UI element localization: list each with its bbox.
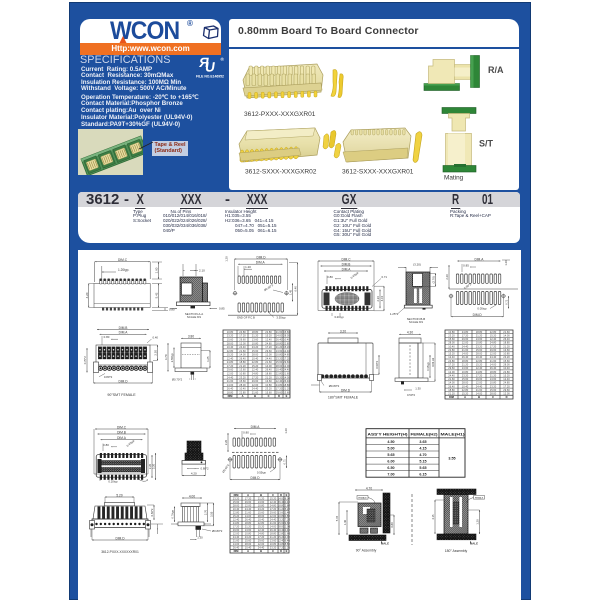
svg-text:13.60: 13.60: [503, 348, 510, 352]
svg-text:21.60: 21.60: [239, 349, 246, 353]
svg-text:17.20: 17.20: [265, 345, 272, 349]
svg-text:29.60: 29.60: [227, 368, 234, 372]
svg-text:23.20: 23.20: [276, 356, 283, 360]
svg-text:22.80: 22.80: [258, 521, 265, 525]
svg-text:13.60: 13.60: [490, 377, 497, 381]
svg-text:Mating: Mating: [444, 175, 464, 182]
svg-text:2.20: 2.20: [445, 274, 449, 280]
svg-text:®: ®: [221, 56, 225, 62]
svg-text:0.71: 0.71: [505, 299, 509, 305]
svg-text:26.40: 26.40: [270, 528, 277, 532]
svg-text:13.60: 13.60: [265, 379, 272, 383]
svg-text:29.60: 29.60: [276, 390, 283, 394]
svg-text:Ø0.60*2: Ø0.60*2: [263, 283, 274, 292]
svg-text:4.15: 4.15: [380, 295, 384, 301]
svg-text:21.20: 21.20: [276, 345, 283, 349]
svg-text:3.20typ: 3.20typ: [334, 315, 344, 319]
svg-text:1.20: 1.20: [225, 256, 229, 262]
svg-text:22.80: 22.80: [239, 390, 246, 394]
svg-text:23.20: 23.20: [490, 384, 497, 388]
svg-text:D: D: [280, 493, 282, 497]
svg-text:24.80: 24.80: [448, 359, 455, 363]
svg-text:26.40: 26.40: [227, 387, 234, 391]
svg-text:6.50: 6.50: [387, 466, 394, 470]
svg-text:2.70: 2.70: [204, 509, 208, 515]
svg-text:29.60: 29.60: [258, 539, 265, 543]
svg-text:3612-PXXX-XXXXXXR01: 3612-PXXX-XXXXXXR01: [101, 550, 139, 554]
svg-text:DIM.B: DIM.B: [119, 326, 128, 330]
svg-text:A: A: [247, 493, 249, 497]
svg-text:13.60: 13.60: [276, 349, 283, 353]
svg-text:Ø0.60*2: Ø0.60*2: [221, 463, 230, 474]
svg-text:FEMALE(H2): FEMALE(H2): [411, 432, 439, 437]
svg-text:12.00: 12.00: [503, 392, 510, 396]
svg-text:21.20: 21.20: [245, 525, 252, 529]
svg-text:21.60: 21.60: [227, 379, 234, 383]
svg-text:10.80: 10.80: [239, 372, 246, 376]
svg-text:3612-SXXX-XXXGXR01: 3612-SXXX-XXXGXR01: [342, 169, 414, 176]
svg-text:14.00: 14.00: [462, 352, 469, 356]
svg-text:10.40: 10.40: [227, 345, 234, 349]
svg-text:23.20: 23.20: [227, 334, 234, 338]
svg-text:17.20: 17.20: [283, 518, 290, 522]
svg-text:15.60: 15.60: [258, 510, 265, 514]
svg-text:14.00: 14.00: [233, 542, 240, 546]
svg-text:21.20: 21.20: [462, 363, 469, 367]
svg-text:B: B: [254, 394, 256, 398]
svg-text:28.00: 28.00: [283, 496, 290, 500]
svg-text:D: D: [278, 394, 280, 398]
svg-text:12.40: 12.40: [227, 356, 234, 360]
svg-text:12.40: 12.40: [233, 518, 240, 522]
svg-text:28.00: 28.00: [503, 363, 510, 367]
svg-text:14.00: 14.00: [276, 334, 283, 338]
svg-text:3.80: 3.80: [188, 335, 194, 339]
svg-text:10.40: 10.40: [233, 507, 240, 511]
svg-text:24.80: 24.80: [252, 372, 259, 376]
svg-text:DIM.H2: DIM.H2: [431, 357, 435, 366]
svg-text:24.80: 24.80: [476, 370, 483, 374]
svg-text:29.60: 29.60: [448, 366, 455, 370]
svg-text:FEMALE: FEMALE: [475, 496, 484, 499]
svg-text:2.34: 2.34: [376, 296, 380, 302]
svg-text:(2.70): (2.70): [432, 276, 436, 283]
svg-text:90°SMT FEMALE: 90°SMT FEMALE: [107, 393, 136, 397]
svg-text:15.60: 15.60: [283, 330, 290, 334]
svg-text:22.80: 22.80: [283, 341, 290, 345]
svg-text:28.00: 28.00: [258, 514, 265, 518]
svg-text:E: E: [286, 549, 288, 553]
svg-text:0.71: 0.71: [382, 275, 388, 279]
svg-text:10.40: 10.40: [462, 384, 469, 388]
svg-text:29.60: 29.60: [490, 348, 497, 352]
svg-text:5.65: 5.65: [387, 453, 394, 457]
svg-text:10.40: 10.40: [476, 355, 483, 359]
svg-text:3.55typ: 3.55typ: [170, 353, 174, 362]
svg-text:21.60: 21.60: [283, 532, 290, 536]
svg-text:18.80: 18.80: [239, 360, 246, 364]
svg-text:21.20: 21.20: [283, 546, 290, 550]
svg-text:ASS'Y HEIGHT(H): ASS'Y HEIGHT(H): [368, 432, 409, 437]
svg-text:DIM.D: DIM.D: [118, 379, 128, 383]
svg-text:15.60: 15.60: [276, 360, 283, 364]
svg-text:15.20: 15.20: [276, 375, 283, 379]
svg-text:3.20: 3.20: [152, 463, 156, 469]
svg-text:10.80: 10.80: [252, 341, 259, 345]
svg-text:24.40: 24.40: [227, 375, 234, 379]
svg-text:28.00: 28.00: [476, 352, 483, 356]
svg-text:12.00: 12.00: [283, 364, 290, 368]
svg-text:MALE: MALE: [381, 542, 389, 546]
svg-text:DIM.A: DIM.A: [474, 257, 484, 261]
svg-text:10.80: 10.80: [276, 353, 283, 357]
svg-text:10.80: 10.80: [476, 341, 483, 345]
svg-text:4.70: 4.70: [419, 453, 426, 457]
svg-text:0.50*2: 0.50*2: [375, 360, 379, 368]
svg-text:3.55: 3.55: [448, 457, 455, 461]
svg-text:12.00: 12.00: [252, 383, 259, 387]
svg-text:24.80: 24.80: [258, 532, 265, 536]
svg-text:1.30: 1.30: [197, 536, 203, 540]
svg-text:0.05typ: 0.05typ: [477, 307, 487, 311]
svg-text:B: B: [478, 395, 480, 399]
svg-text:0.71: 0.71: [283, 459, 287, 465]
svg-text:3612-SXXX-XXXGXR02: 3612-SXXX-XXXGXR02: [245, 169, 317, 176]
svg-text:12.40: 12.40: [476, 366, 483, 370]
svg-text:24.40: 24.40: [462, 344, 469, 348]
svg-text:15.20: 15.20: [233, 514, 240, 518]
svg-text:1.20: 1.20: [284, 428, 288, 434]
svg-text:C: C: [268, 394, 270, 398]
svg-text:10.80: 10.80: [462, 370, 469, 374]
svg-text:DIM.B: DIM.B: [117, 430, 126, 434]
svg-text:13.60: 13.60: [245, 528, 252, 532]
svg-text:18.80: 18.80: [252, 330, 259, 334]
svg-text:1.25: 1.25: [206, 356, 210, 362]
svg-text:24.40: 24.40: [476, 384, 483, 388]
svg-text:DIM.C: DIM.C: [117, 425, 127, 429]
svg-text:24.40: 24.40: [283, 528, 290, 532]
svg-text:3612-PXXX-XXXGXR01: 3612-PXXX-XXXGXR01: [244, 111, 316, 118]
svg-text:12.40: 12.40: [283, 349, 290, 353]
svg-text:21.60: 21.60: [265, 360, 272, 364]
svg-text:5.00: 5.00: [387, 447, 394, 451]
svg-text:18.80: 18.80: [265, 372, 272, 376]
svg-text:22.80: 22.80: [490, 330, 497, 334]
svg-text:14.00: 14.00: [283, 375, 290, 379]
svg-text:12.40: 12.40: [276, 379, 283, 383]
svg-text:3.55: 3.55: [210, 511, 214, 517]
svg-text:18.80: 18.80: [283, 542, 290, 546]
svg-text:R/A: R/A: [488, 65, 504, 75]
svg-text:28.00: 28.00: [490, 392, 497, 396]
svg-text:23.20: 23.20: [239, 375, 246, 379]
svg-text:13.60: 13.60: [252, 338, 259, 342]
svg-text:15.60: 15.60: [239, 379, 246, 383]
svg-text:12.40: 12.40: [258, 528, 265, 532]
svg-text:12.00: 12.00: [283, 525, 290, 529]
svg-text:2.10: 2.10: [199, 268, 205, 272]
svg-text:15.60: 15.60: [233, 500, 240, 504]
svg-text:12.40: 12.40: [265, 338, 272, 342]
svg-text:29.60: 29.60: [265, 349, 272, 353]
svg-text:24.80: 24.80: [276, 383, 283, 387]
svg-text:26.40: 26.40: [462, 355, 469, 359]
svg-text:90° Assembly: 90° Assembly: [356, 549, 377, 553]
svg-text:SCALE 8/1: SCALE 8/1: [409, 320, 424, 324]
svg-text:13.60: 13.60: [476, 337, 483, 341]
svg-text:21.60: 21.60: [448, 377, 455, 381]
svg-text:0.40: 0.40: [153, 336, 159, 340]
svg-text:12.00: 12.00: [462, 341, 469, 345]
svg-text:0.80: 0.80: [390, 522, 394, 528]
svg-text:24.40: 24.40: [258, 546, 265, 550]
svg-text:10.40: 10.40: [258, 518, 265, 522]
svg-text:15.20: 15.20: [448, 352, 455, 356]
svg-text:5.20: 5.20: [116, 493, 122, 497]
svg-text:0.80: 0.80: [243, 430, 249, 434]
svg-text:23.20: 23.20: [503, 355, 510, 359]
svg-text:10.40: 10.40: [239, 387, 246, 391]
svg-text:0.85: 0.85: [463, 264, 469, 268]
svg-text:4.20: 4.20: [85, 292, 89, 298]
svg-text:13.60: 13.60: [462, 366, 469, 370]
svg-text:21.20: 21.20: [503, 344, 510, 348]
svg-text:21.20: 21.20: [476, 334, 483, 338]
svg-text:28.00: 28.00: [276, 364, 283, 368]
svg-text:23.20: 23.20: [252, 345, 259, 349]
svg-text:15.60: 15.60: [462, 377, 469, 381]
svg-text:23.20: 23.20: [476, 344, 483, 348]
svg-text:4.30: 4.30: [407, 331, 413, 335]
svg-text:18.80: 18.80: [448, 388, 455, 392]
svg-text:24.80: 24.80: [233, 521, 240, 525]
svg-text:12.40: 12.40: [270, 500, 277, 504]
svg-text:15.20: 15.20: [476, 363, 483, 367]
svg-text:24.40: 24.40: [245, 507, 252, 511]
svg-text:14.00: 14.00: [283, 535, 290, 539]
svg-text:29.60: 29.60: [283, 360, 290, 364]
svg-text:14.00: 14.00: [503, 334, 510, 338]
svg-text:15.20: 15.20: [462, 392, 469, 396]
svg-text:1.45: 1.45: [289, 289, 293, 295]
svg-text:24.80: 24.80: [283, 353, 290, 357]
svg-text:15.60: 15.60: [490, 388, 497, 392]
svg-text:4.70: 4.70: [366, 486, 372, 490]
svg-text:28.00: 28.00: [283, 334, 290, 338]
svg-text:15.20: 15.20: [503, 373, 510, 377]
svg-text:15.20: 15.20: [490, 334, 497, 338]
svg-text:DIM.D: DIM.D: [115, 536, 125, 540]
svg-text:24.40: 24.40: [270, 518, 277, 522]
svg-text:1.40: 1.40: [343, 519, 347, 525]
svg-text:28.00: 28.00: [462, 381, 469, 385]
svg-text:17.20: 17.20: [270, 507, 277, 511]
svg-text:14.00: 14.00: [227, 383, 234, 387]
svg-text:DIM.D: DIM.D: [250, 476, 260, 480]
svg-text:3.20: 3.20: [340, 329, 346, 333]
svg-text:FILE NO.E146952: FILE NO.E146952: [196, 75, 224, 79]
svg-text:B: B: [260, 549, 262, 553]
svg-text:24.80: 24.80: [490, 341, 497, 345]
svg-text:17.20: 17.20: [233, 525, 240, 529]
svg-text:15.20: 15.20: [265, 334, 272, 338]
svg-text:17.20: 17.20: [476, 373, 483, 377]
svg-text:22.80: 22.80: [276, 372, 283, 376]
svg-text:21.60: 21.60: [252, 390, 259, 394]
svg-text:24.80: 24.80: [270, 503, 277, 507]
svg-text:15.20: 15.20: [227, 353, 234, 357]
svg-text:12.00: 12.00: [227, 372, 234, 376]
svg-text:26.40: 26.40: [448, 384, 455, 388]
svg-text:12.40: 12.40: [448, 355, 455, 359]
svg-text:0.35typ: 0.35typ: [426, 362, 430, 371]
svg-text:15.60: 15.60: [503, 359, 510, 363]
svg-text:21.20: 21.20: [239, 364, 246, 368]
svg-text:18.80: 18.80: [270, 532, 277, 536]
svg-text:12.40: 12.40: [252, 368, 259, 372]
svg-text:12.40: 12.40: [283, 510, 290, 514]
svg-text:0.55typ: 0.55typ: [257, 470, 267, 474]
svg-text:MALE: MALE: [470, 542, 478, 546]
svg-text:4.15: 4.15: [419, 447, 426, 451]
svg-text:26.40: 26.40: [239, 356, 246, 360]
svg-text:29.60: 29.60: [476, 377, 483, 381]
svg-text:DIM: DIM: [228, 394, 233, 398]
svg-text:18.80: 18.80: [276, 341, 283, 345]
svg-text:21.60: 21.60: [276, 330, 283, 334]
svg-text:23.20: 23.20: [245, 535, 252, 539]
svg-text:21.60: 21.60: [476, 388, 483, 392]
svg-text:14.00: 14.00: [239, 353, 246, 357]
svg-text:28.00: 28.00: [245, 542, 252, 546]
svg-text:0.40typ: 0.40typ: [350, 270, 360, 279]
svg-text:12.00: 12.00: [490, 352, 497, 356]
svg-text:24.80: 24.80: [503, 381, 510, 385]
svg-text:17.20: 17.20: [258, 535, 265, 539]
svg-text:26.40: 26.40: [283, 539, 290, 543]
svg-text:DIM: DIM: [234, 493, 239, 497]
svg-text:DIM.D: DIM.D: [473, 313, 483, 317]
svg-text:0.70typ: 0.70typ: [171, 509, 175, 518]
svg-text:18.80: 18.80: [227, 390, 234, 394]
svg-text:DIM.A: DIM.A: [251, 425, 261, 429]
svg-text:12.00: 12.00: [448, 370, 455, 374]
svg-text:5.15: 5.15: [419, 460, 426, 464]
svg-text:24.40: 24.40: [239, 345, 246, 349]
svg-text:28.00: 28.00: [227, 341, 234, 345]
svg-text:3.55typ: 3.55typ: [276, 316, 286, 320]
svg-text:29.60: 29.60: [283, 521, 290, 525]
svg-text:23.20: 23.20: [265, 387, 272, 391]
svg-text:21.60: 21.60: [283, 372, 290, 376]
svg-text:10.40: 10.40: [503, 366, 510, 370]
svg-text:7.00: 7.00: [387, 473, 394, 477]
svg-text:22.80: 22.80: [283, 503, 290, 507]
svg-text:0.85: 0.85: [219, 307, 225, 311]
svg-text:24.80: 24.80: [283, 514, 290, 518]
svg-text:22.80: 22.80: [265, 330, 272, 334]
svg-text:21.20: 21.20: [283, 387, 290, 391]
svg-text:18.80: 18.80: [476, 330, 483, 334]
svg-text:0.20typ: 0.20typ: [108, 480, 118, 484]
svg-text:S/T: S/T: [479, 139, 494, 149]
svg-text:17.20: 17.20: [283, 356, 290, 360]
svg-text:23.20: 23.20: [448, 334, 455, 338]
svg-text:Ø0.80*2: Ø0.80*2: [329, 384, 340, 388]
svg-text:24.80: 24.80: [462, 330, 469, 334]
svg-text:5.65: 5.65: [419, 466, 426, 470]
svg-text:12.00: 12.00: [245, 503, 252, 507]
svg-text:4.50: 4.50: [387, 440, 394, 444]
svg-text:28.00: 28.00: [233, 503, 240, 507]
svg-text:24.80: 24.80: [227, 360, 234, 364]
svg-text:0.70*2: 0.70*2: [83, 356, 87, 365]
svg-text:29.60: 29.60: [270, 510, 277, 514]
svg-text:15.20: 15.20: [283, 345, 290, 349]
svg-text:15.60: 15.60: [227, 338, 234, 342]
svg-text:1.20: 1.20: [504, 260, 508, 266]
svg-text:14.00: 14.00: [265, 364, 272, 368]
svg-text:26.40: 26.40: [245, 518, 252, 522]
svg-text:DIM.C: DIM.C: [341, 257, 351, 261]
svg-text:17.20: 17.20: [490, 344, 497, 348]
svg-text:6.40: 6.40: [294, 286, 298, 292]
svg-text:24.40: 24.40: [490, 355, 497, 359]
svg-text:21.60: 21.60: [490, 359, 497, 363]
svg-text:2.20: 2.20: [224, 439, 228, 445]
svg-text:14.00: 14.00: [448, 381, 455, 385]
svg-text:18.80: 18.80: [245, 521, 252, 525]
svg-text:26.40: 26.40: [283, 379, 290, 383]
svg-text:21.60: 21.60: [503, 330, 510, 334]
svg-text:17.20: 17.20: [462, 334, 469, 338]
svg-text:21.60: 21.60: [245, 510, 252, 514]
svg-text:17.20: 17.20: [503, 384, 510, 388]
svg-text:10.80: 10.80: [490, 381, 497, 385]
svg-text:23.20: 23.20: [233, 496, 240, 500]
svg-text:Ø0.80*2: Ø0.80*2: [212, 529, 223, 533]
svg-text:10.80: 10.80: [265, 383, 272, 387]
svg-text:0.80: 0.80: [169, 307, 175, 311]
svg-text:4.00: 4.00: [189, 494, 195, 498]
svg-text:10.40: 10.40: [245, 546, 252, 550]
svg-text:C: C: [492, 395, 494, 399]
svg-text:3.65: 3.65: [419, 440, 426, 444]
svg-text:0.50*2: 0.50*2: [407, 393, 416, 397]
svg-text:DIM.D: DIM.D: [256, 255, 266, 259]
svg-text:A: A: [242, 394, 244, 398]
svg-text:14.00: 14.00: [270, 525, 277, 529]
svg-text:12.00: 12.00: [270, 514, 277, 518]
svg-text:13.60: 13.60: [283, 390, 290, 394]
svg-text:12.40: 12.40: [503, 377, 510, 381]
svg-text:10.80: 10.80: [245, 532, 252, 536]
svg-text:6.15: 6.15: [419, 473, 426, 477]
svg-text:15.60: 15.60: [252, 349, 259, 353]
svg-text:10.40: 10.40: [276, 368, 283, 372]
svg-text:0.80*2: 0.80*2: [201, 467, 210, 471]
svg-text:24.40: 24.40: [283, 368, 290, 372]
svg-text:E: E: [286, 394, 288, 398]
svg-text:22.80: 22.80: [448, 348, 455, 352]
svg-text:22.80: 22.80: [233, 510, 240, 514]
svg-text:(3.20): (3.20): [413, 263, 421, 267]
svg-text:10.40: 10.40: [448, 344, 455, 348]
svg-text:29.60: 29.60: [245, 500, 252, 504]
svg-text:23.20: 23.20: [462, 373, 469, 377]
svg-text:29.60: 29.60: [503, 388, 510, 392]
